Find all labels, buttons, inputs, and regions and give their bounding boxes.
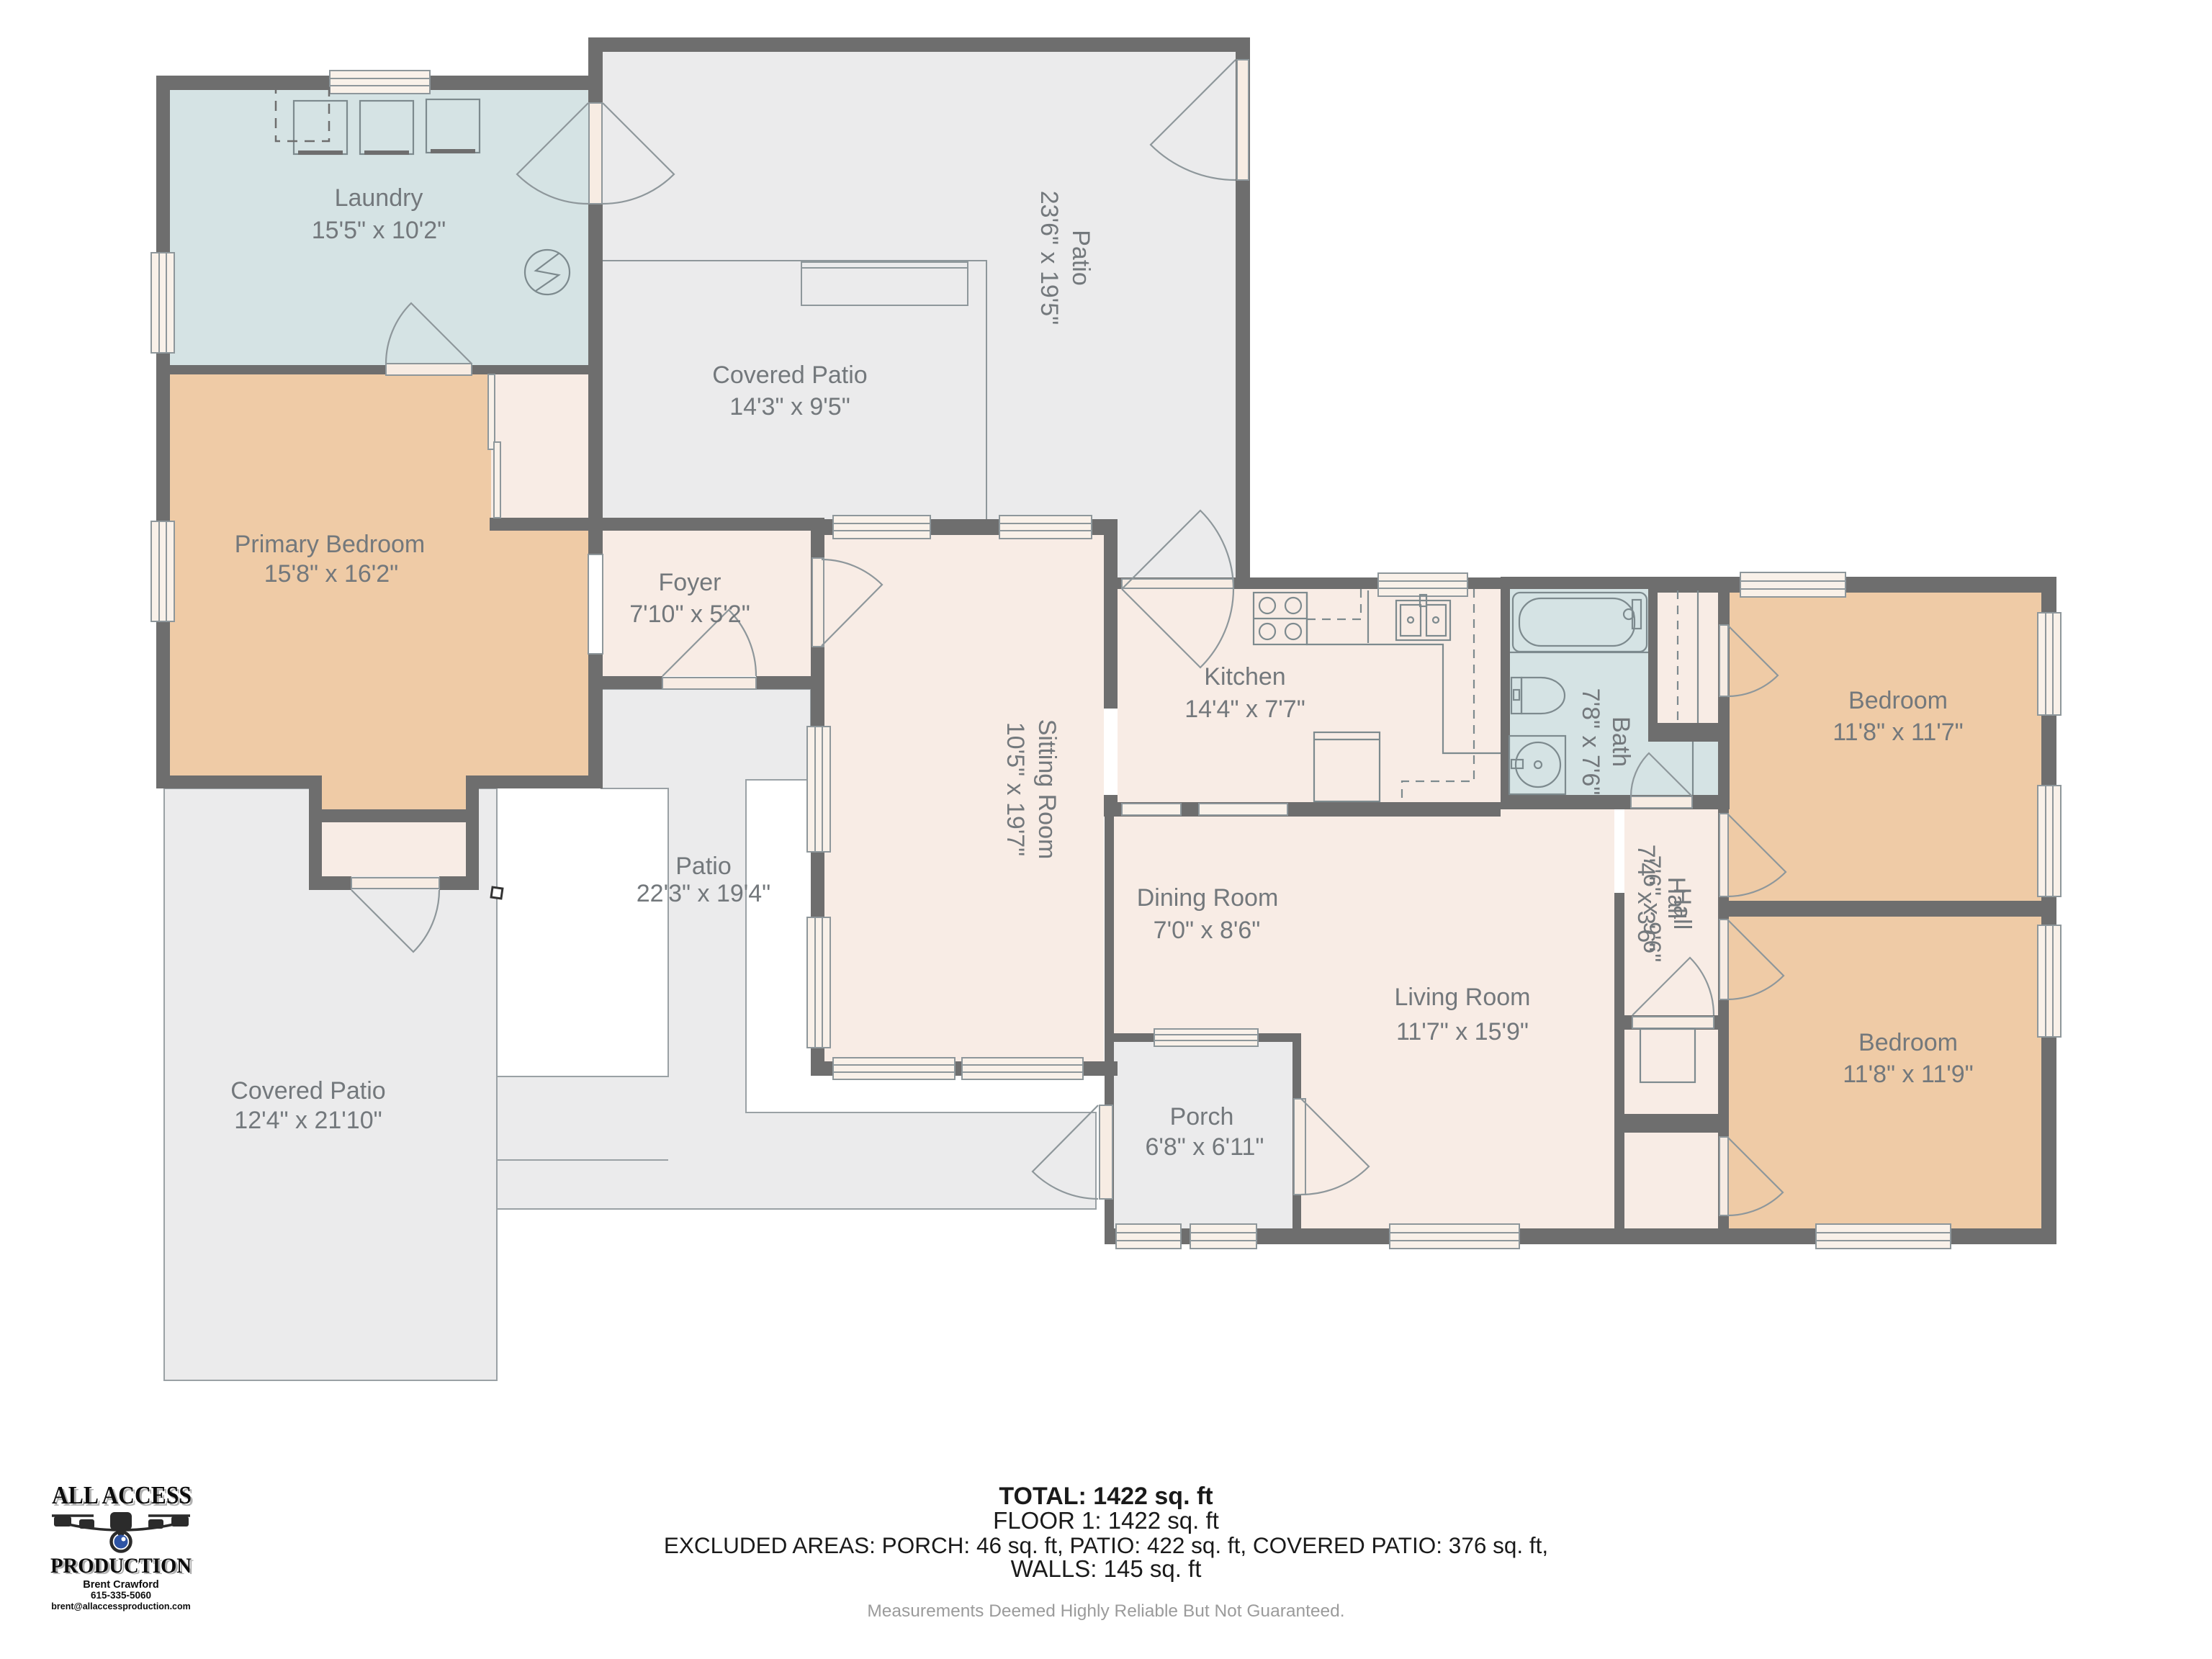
svg-text:Patio: Patio: [1067, 230, 1094, 286]
svg-text:14'4" x 7'7": 14'4" x 7'7": [1184, 696, 1305, 723]
svg-text:11'7" x 15'9": 11'7" x 15'9": [1396, 1018, 1529, 1046]
svg-text:22'3" x 19'4": 22'3" x 19'4": [637, 880, 770, 907]
svg-text:Living Room: Living Room: [1395, 984, 1531, 1011]
svg-text:15'5" x 10'2": 15'5" x 10'2": [312, 217, 446, 244]
svg-text:Brent Crawford: Brent Crawford: [83, 1579, 159, 1591]
svg-text:EXCLUDED AREAS: PORCH: 46 sq.: EXCLUDED AREAS: PORCH: 46 sq. ft, PATIO:…: [664, 1532, 1548, 1558]
svg-text:Foyer: Foyer: [659, 569, 721, 596]
svg-text:Dining Room: Dining Room: [1137, 884, 1279, 912]
svg-text:Bedroom: Bedroom: [1858, 1029, 1958, 1056]
svg-text:Porch: Porch: [1170, 1103, 1234, 1130]
svg-text:11'8" x 11'9": 11'8" x 11'9": [1843, 1061, 1973, 1088]
svg-text:FLOOR 1: 1422 sq. ft: FLOOR 1: 1422 sq. ft: [993, 1507, 1219, 1534]
svg-text:10'5" x 19'7": 10'5" x 19'7": [1002, 722, 1029, 856]
svg-text:TOTAL: 1422 sq. ft: TOTAL: 1422 sq. ft: [999, 1483, 1213, 1510]
svg-text:Bath: Bath: [1607, 716, 1635, 767]
svg-text:15'8" x 16'2": 15'8" x 16'2": [264, 560, 398, 588]
svg-text:PRODUCTION: PRODUCTION: [50, 1554, 192, 1578]
svg-text:Sitting Room: Sitting Room: [1033, 719, 1061, 860]
svg-text:Patio: Patio: [675, 853, 732, 880]
svg-text:23'6" x 19'5": 23'6" x 19'5": [1035, 191, 1063, 325]
svg-text:Measurements Deemed Highly Rel: Measurements Deemed Highly Reliable But …: [867, 1601, 1344, 1621]
svg-text:12'4" x 21'10": 12'4" x 21'10": [234, 1107, 382, 1134]
svg-text:Covered Patio: Covered Patio: [230, 1077, 385, 1105]
svg-text:615-335-5060: 615-335-5060: [91, 1590, 151, 1601]
svg-text:11'8" x 11'7": 11'8" x 11'7": [1833, 719, 1963, 746]
svg-text:Laundry: Laundry: [335, 184, 423, 212]
svg-text:7'0" x 8'6": 7'0" x 8'6": [1154, 917, 1261, 944]
svg-text:7'6" x 9'6": 7'6" x 9'6": [1638, 855, 1665, 963]
svg-text:Bedroom: Bedroom: [1848, 687, 1948, 714]
svg-text:ALL ACCESS: ALL ACCESS: [52, 1481, 192, 1509]
svg-text:6'8" x 6'11": 6'8" x 6'11": [1145, 1133, 1264, 1161]
svg-text:Kitchen: Kitchen: [1204, 663, 1285, 691]
svg-text:Covered Patio: Covered Patio: [712, 361, 867, 389]
svg-text:Hall: Hall: [1668, 888, 1696, 930]
svg-text:7'10" x 5'2": 7'10" x 5'2": [629, 601, 750, 628]
svg-text:Primary Bedroom: Primary Bedroom: [235, 531, 426, 558]
svg-text:WALLS: 145 sq. ft: WALLS: 145 sq. ft: [1011, 1555, 1202, 1582]
svg-text:7'8" x 7'6": 7'8" x 7'6": [1577, 688, 1604, 796]
svg-text:14'3" x 9'5": 14'3" x 9'5": [729, 393, 850, 421]
svg-text:brent@allaccessproduction.com: brent@allaccessproduction.com: [51, 1601, 191, 1611]
